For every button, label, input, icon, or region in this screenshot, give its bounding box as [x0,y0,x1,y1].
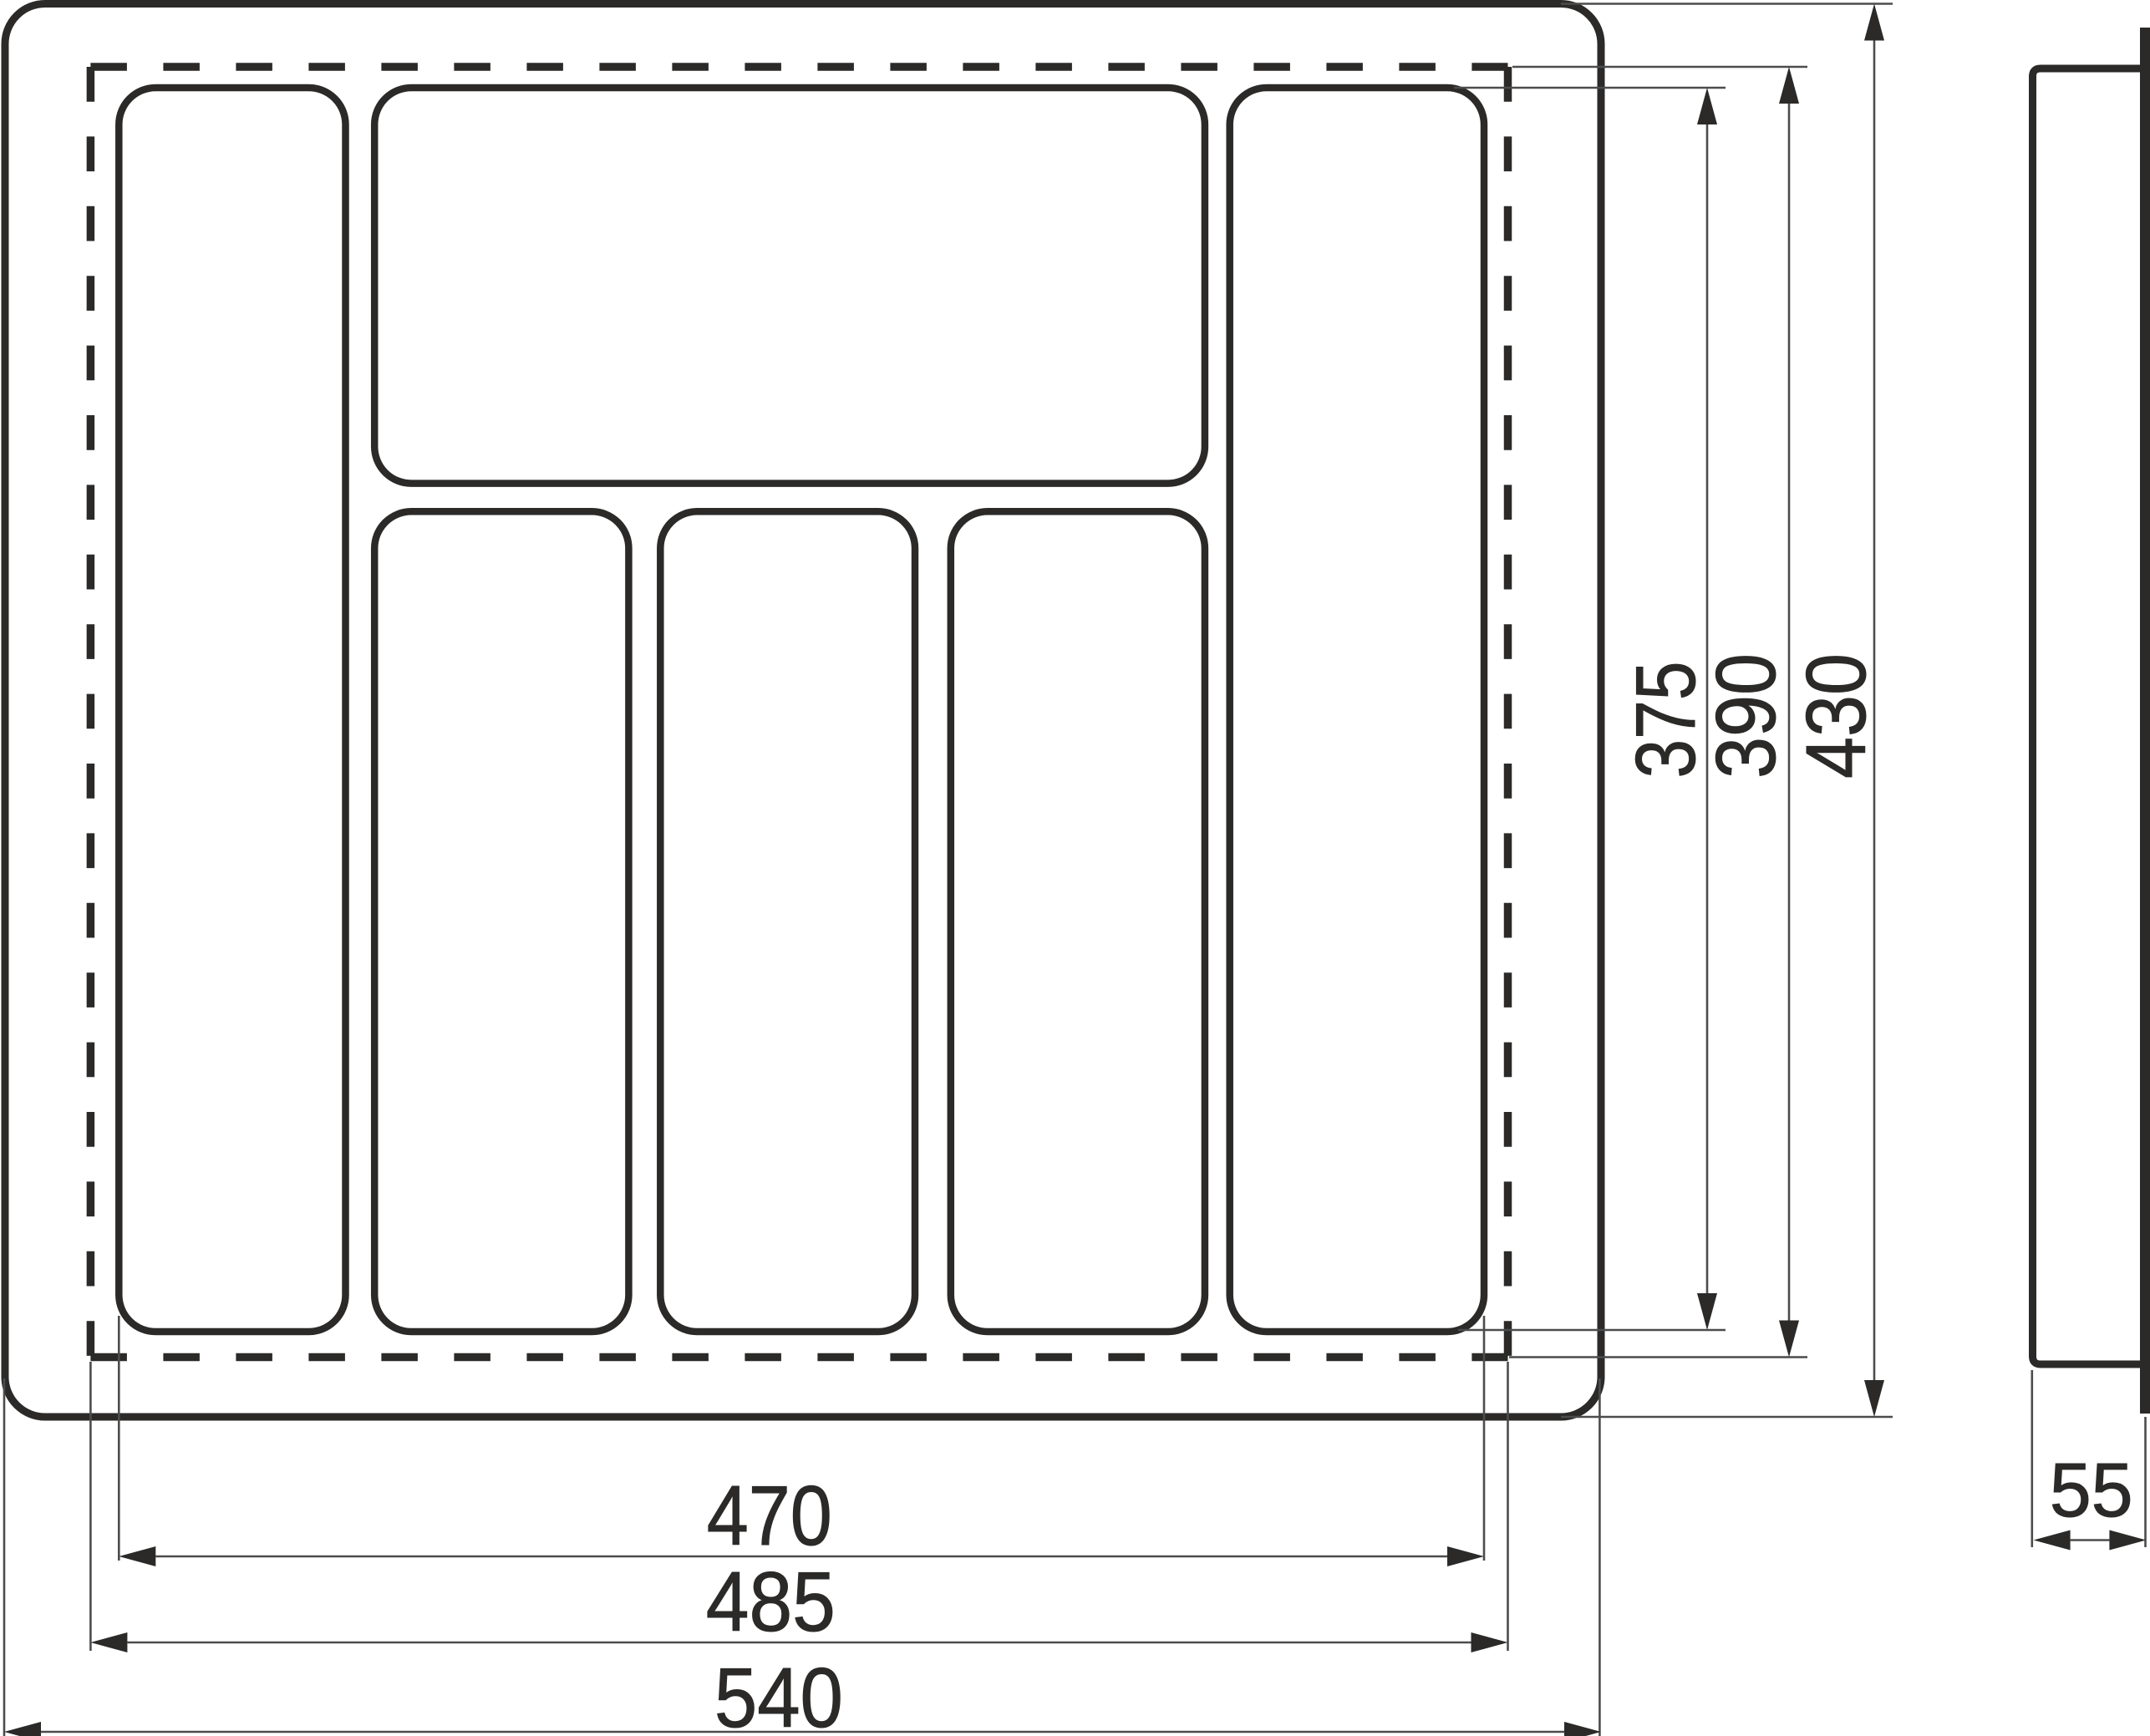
svg-text:485: 485 [706,1556,836,1649]
svg-text:470: 470 [707,1470,832,1563]
svg-text:540: 540 [714,1652,843,1736]
svg-text:390: 390 [1700,653,1793,779]
svg-text:55: 55 [2050,1448,2133,1533]
svg-text:430: 430 [1790,653,1883,779]
